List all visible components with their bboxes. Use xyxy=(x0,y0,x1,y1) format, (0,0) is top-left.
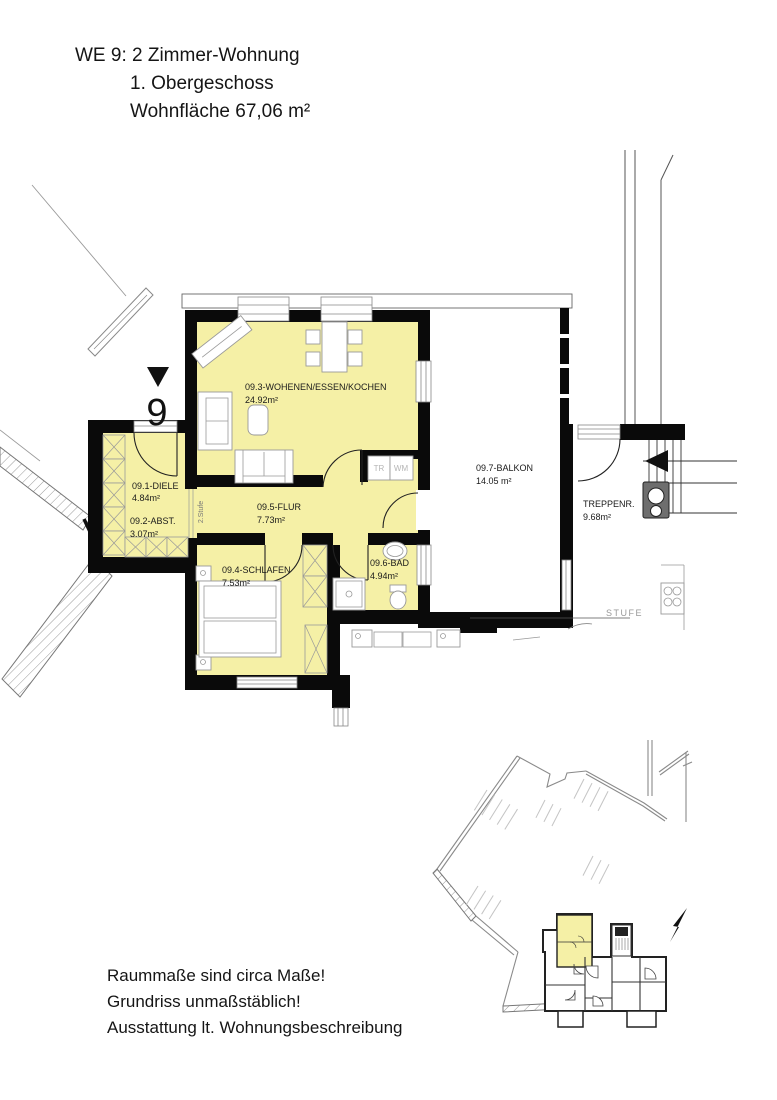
overview-balcony-stub xyxy=(558,1011,583,1027)
room-area-schlafen: 7.53m² xyxy=(222,578,250,588)
room-area-abst: 3.07m² xyxy=(130,529,158,539)
room-label-wohnen: 09.3-WOHENEN/ESSEN/KOCHEN xyxy=(245,382,387,392)
overview-balcony-stub xyxy=(627,1011,656,1027)
note-line-3: Ausstattung lt. Wohnungsbeschreibung xyxy=(107,1015,403,1041)
site-band-nw xyxy=(433,869,476,921)
stairwell xyxy=(643,440,737,518)
chair xyxy=(306,330,320,344)
wardrobe-abst-row xyxy=(125,537,188,557)
dining-table xyxy=(322,322,347,372)
wardrobe-diele-column xyxy=(103,435,125,555)
utility-closet: TR WM xyxy=(368,456,413,480)
note-line-2: Grundriss unmaßstäblich! xyxy=(107,989,403,1015)
note-line-1: Raummaße sind circa Maße! xyxy=(107,963,403,989)
room-label-balkon: 09.7-BALKON xyxy=(476,463,533,473)
room-area-balkon: 14.05 m² xyxy=(476,476,512,486)
room-label-diele: 09.1-DIELE xyxy=(132,481,179,491)
floorplan-drawing: TR WM xyxy=(0,0,777,1100)
room-area-treppe: 9.68m² xyxy=(583,512,611,522)
chair xyxy=(348,352,362,366)
toilet xyxy=(390,591,406,609)
plan-notes: Raummaße sind circa Maße! Grundriss unma… xyxy=(107,963,403,1041)
neighbor-sink xyxy=(437,630,460,647)
room-area-bad: 4.94m² xyxy=(370,571,398,581)
unit-number: 9 xyxy=(146,392,167,434)
title-line-unit: WE 9: 2 Zimmer-Wohnung xyxy=(75,42,310,70)
room-label-abst: 09.2-ABST. xyxy=(130,516,176,526)
room-label-schlafen: 09.4-SCHLAFEN xyxy=(222,565,291,575)
title-line-area: Wohnfläche 67,06 m² xyxy=(75,98,310,126)
ramp-band-lower xyxy=(2,557,112,697)
chair xyxy=(348,330,362,344)
site-context-top-right xyxy=(625,150,673,424)
stair-direction-arrow xyxy=(645,450,668,472)
window-balcony-side xyxy=(562,560,571,610)
unit-marker: 9 xyxy=(146,367,169,434)
stairwell-door-arc xyxy=(578,439,620,481)
double-bed xyxy=(199,581,281,657)
stufe-label: STUFE xyxy=(606,608,643,618)
room-area-diele: 4.84m² xyxy=(132,493,160,503)
stair-door-gap xyxy=(578,425,620,439)
parking-stalls xyxy=(466,779,609,919)
room-area-flur: 7.73m² xyxy=(257,515,285,525)
window-living-1 xyxy=(238,297,289,321)
room-label-bad: 09.6-BAD xyxy=(370,558,410,568)
nightstand xyxy=(196,566,211,581)
balcony-door-flur-gap xyxy=(416,490,431,530)
ramp-band-upper xyxy=(0,447,91,530)
building-footprint xyxy=(543,914,666,1027)
balcony-door-living xyxy=(416,361,431,402)
north-arrow-icon xyxy=(670,908,687,942)
room-label-treppe: TREPPENR. xyxy=(583,499,635,509)
floorplan-page: WE 9: 2 Zimmer-Wohnung 1. Obergeschoss W… xyxy=(0,0,777,1100)
neighbor-sink xyxy=(352,630,372,647)
plan-title: WE 9: 2 Zimmer-Wohnung 1. Obergeschoss W… xyxy=(75,42,310,126)
coffee-table xyxy=(248,405,268,435)
window-schlafen xyxy=(237,677,297,688)
chair xyxy=(306,352,320,366)
dryer-label: TR xyxy=(374,464,385,473)
room-label-flur: 09.5-FLUR xyxy=(257,502,302,512)
room-area-wohnen: 24.92m² xyxy=(245,395,278,405)
shower xyxy=(333,578,365,610)
site-overview xyxy=(433,740,692,1027)
overview-unit9-highlight xyxy=(557,915,592,967)
title-line-floor: 1. Obergeschoss xyxy=(75,70,310,98)
window-neighbor-stub xyxy=(334,708,348,726)
neighbor-stove xyxy=(661,583,684,614)
entry-marker-triangle xyxy=(147,367,169,387)
window-living-2 xyxy=(321,297,372,321)
washer-label: WM xyxy=(394,464,409,473)
zwei-stufe-label: 2.Stufe xyxy=(198,501,205,523)
window-bad xyxy=(417,545,431,585)
